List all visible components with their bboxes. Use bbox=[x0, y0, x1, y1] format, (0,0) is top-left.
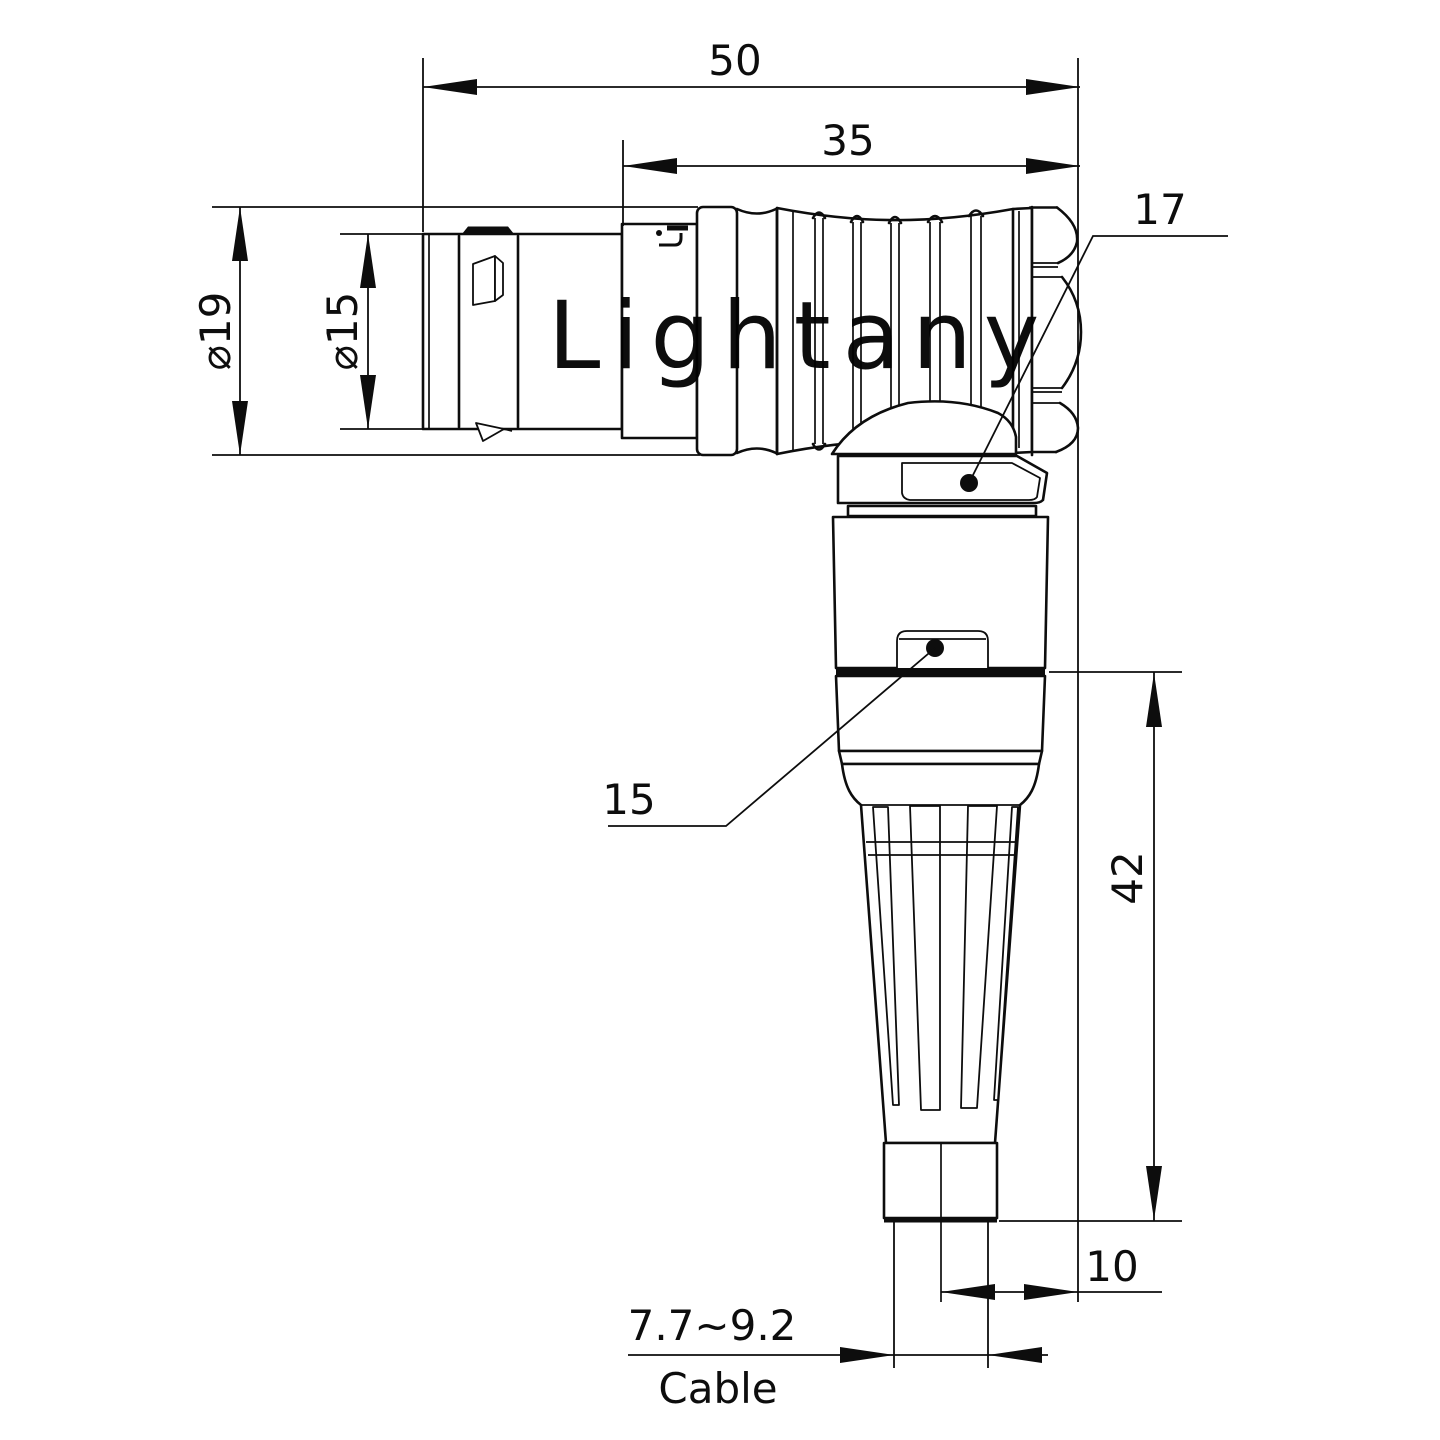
body-thick-band bbox=[836, 669, 1045, 676]
vertical-body bbox=[833, 517, 1048, 764]
neck-bottom-edge bbox=[737, 449, 776, 454]
dimension-grip-length: 35 bbox=[623, 116, 1080, 174]
arrowhead-right bbox=[1026, 158, 1080, 174]
dim-text-vertical-length: 42 bbox=[1103, 851, 1152, 904]
callout-text-17: 17 bbox=[1133, 185, 1186, 234]
arrowhead-bottom bbox=[360, 375, 376, 429]
arrowhead-right bbox=[1024, 1284, 1078, 1300]
dimension-cable-diameter: 7.7~9.2 Cable bbox=[628, 1301, 1048, 1413]
dim-text-cable-label: Cable bbox=[658, 1364, 777, 1413]
connector-dimension-drawing: Lightany 50 35 ⌀19 ⌀15 bbox=[0, 0, 1440, 1440]
logo-mark-dot bbox=[656, 230, 662, 236]
dimension-barrel-diameter: ⌀15 bbox=[318, 234, 376, 429]
arrowhead-left bbox=[623, 158, 677, 174]
arrowhead-left bbox=[423, 79, 477, 95]
body-lower-outline bbox=[836, 676, 1045, 751]
callout-text-15: 15 bbox=[602, 775, 655, 824]
latch-window-side-face bbox=[495, 256, 503, 301]
arrowhead-top bbox=[232, 207, 248, 261]
arrowhead-right bbox=[1026, 79, 1080, 95]
elbow-housing bbox=[838, 456, 1047, 516]
dimension-vertical-length: 42 bbox=[1103, 672, 1162, 1221]
arrowhead-top bbox=[1146, 673, 1162, 727]
arrowhead-bottom bbox=[1146, 1166, 1162, 1220]
dimension-cable-offset: 10 bbox=[941, 1242, 1162, 1300]
latch-window bbox=[473, 256, 495, 305]
dim-text-cable-offset: 10 bbox=[1085, 1242, 1138, 1291]
dim-text-outer-diameter: ⌀19 bbox=[191, 292, 240, 371]
arrowhead-inward-right bbox=[988, 1347, 1042, 1363]
arrowhead-left bbox=[941, 1284, 995, 1300]
elbow-step-ring bbox=[848, 506, 1036, 516]
dimension-overall-length: 50 bbox=[423, 36, 1080, 95]
dim-text-overall-length: 50 bbox=[708, 36, 761, 85]
arrowhead-top bbox=[360, 234, 376, 288]
body-lower-ring bbox=[839, 751, 1042, 764]
neck-top-edge bbox=[737, 209, 776, 214]
strain-relief-boot bbox=[842, 764, 1039, 1143]
dimension-outer-diameter: ⌀19 bbox=[191, 207, 248, 455]
dim-text-grip-length: 35 bbox=[821, 116, 874, 165]
latch-spring-cap bbox=[462, 227, 514, 235]
watermark-text: Lightany bbox=[548, 282, 1051, 391]
dim-text-barrel-diameter: ⌀15 bbox=[318, 292, 367, 371]
dim-text-cable-diameter-range: 7.7~9.2 bbox=[628, 1301, 797, 1350]
drawing-canvas: Lightany 50 35 ⌀19 ⌀15 bbox=[0, 0, 1440, 1440]
arrowhead-bottom bbox=[232, 401, 248, 455]
arrowhead-inward-left bbox=[840, 1347, 894, 1363]
